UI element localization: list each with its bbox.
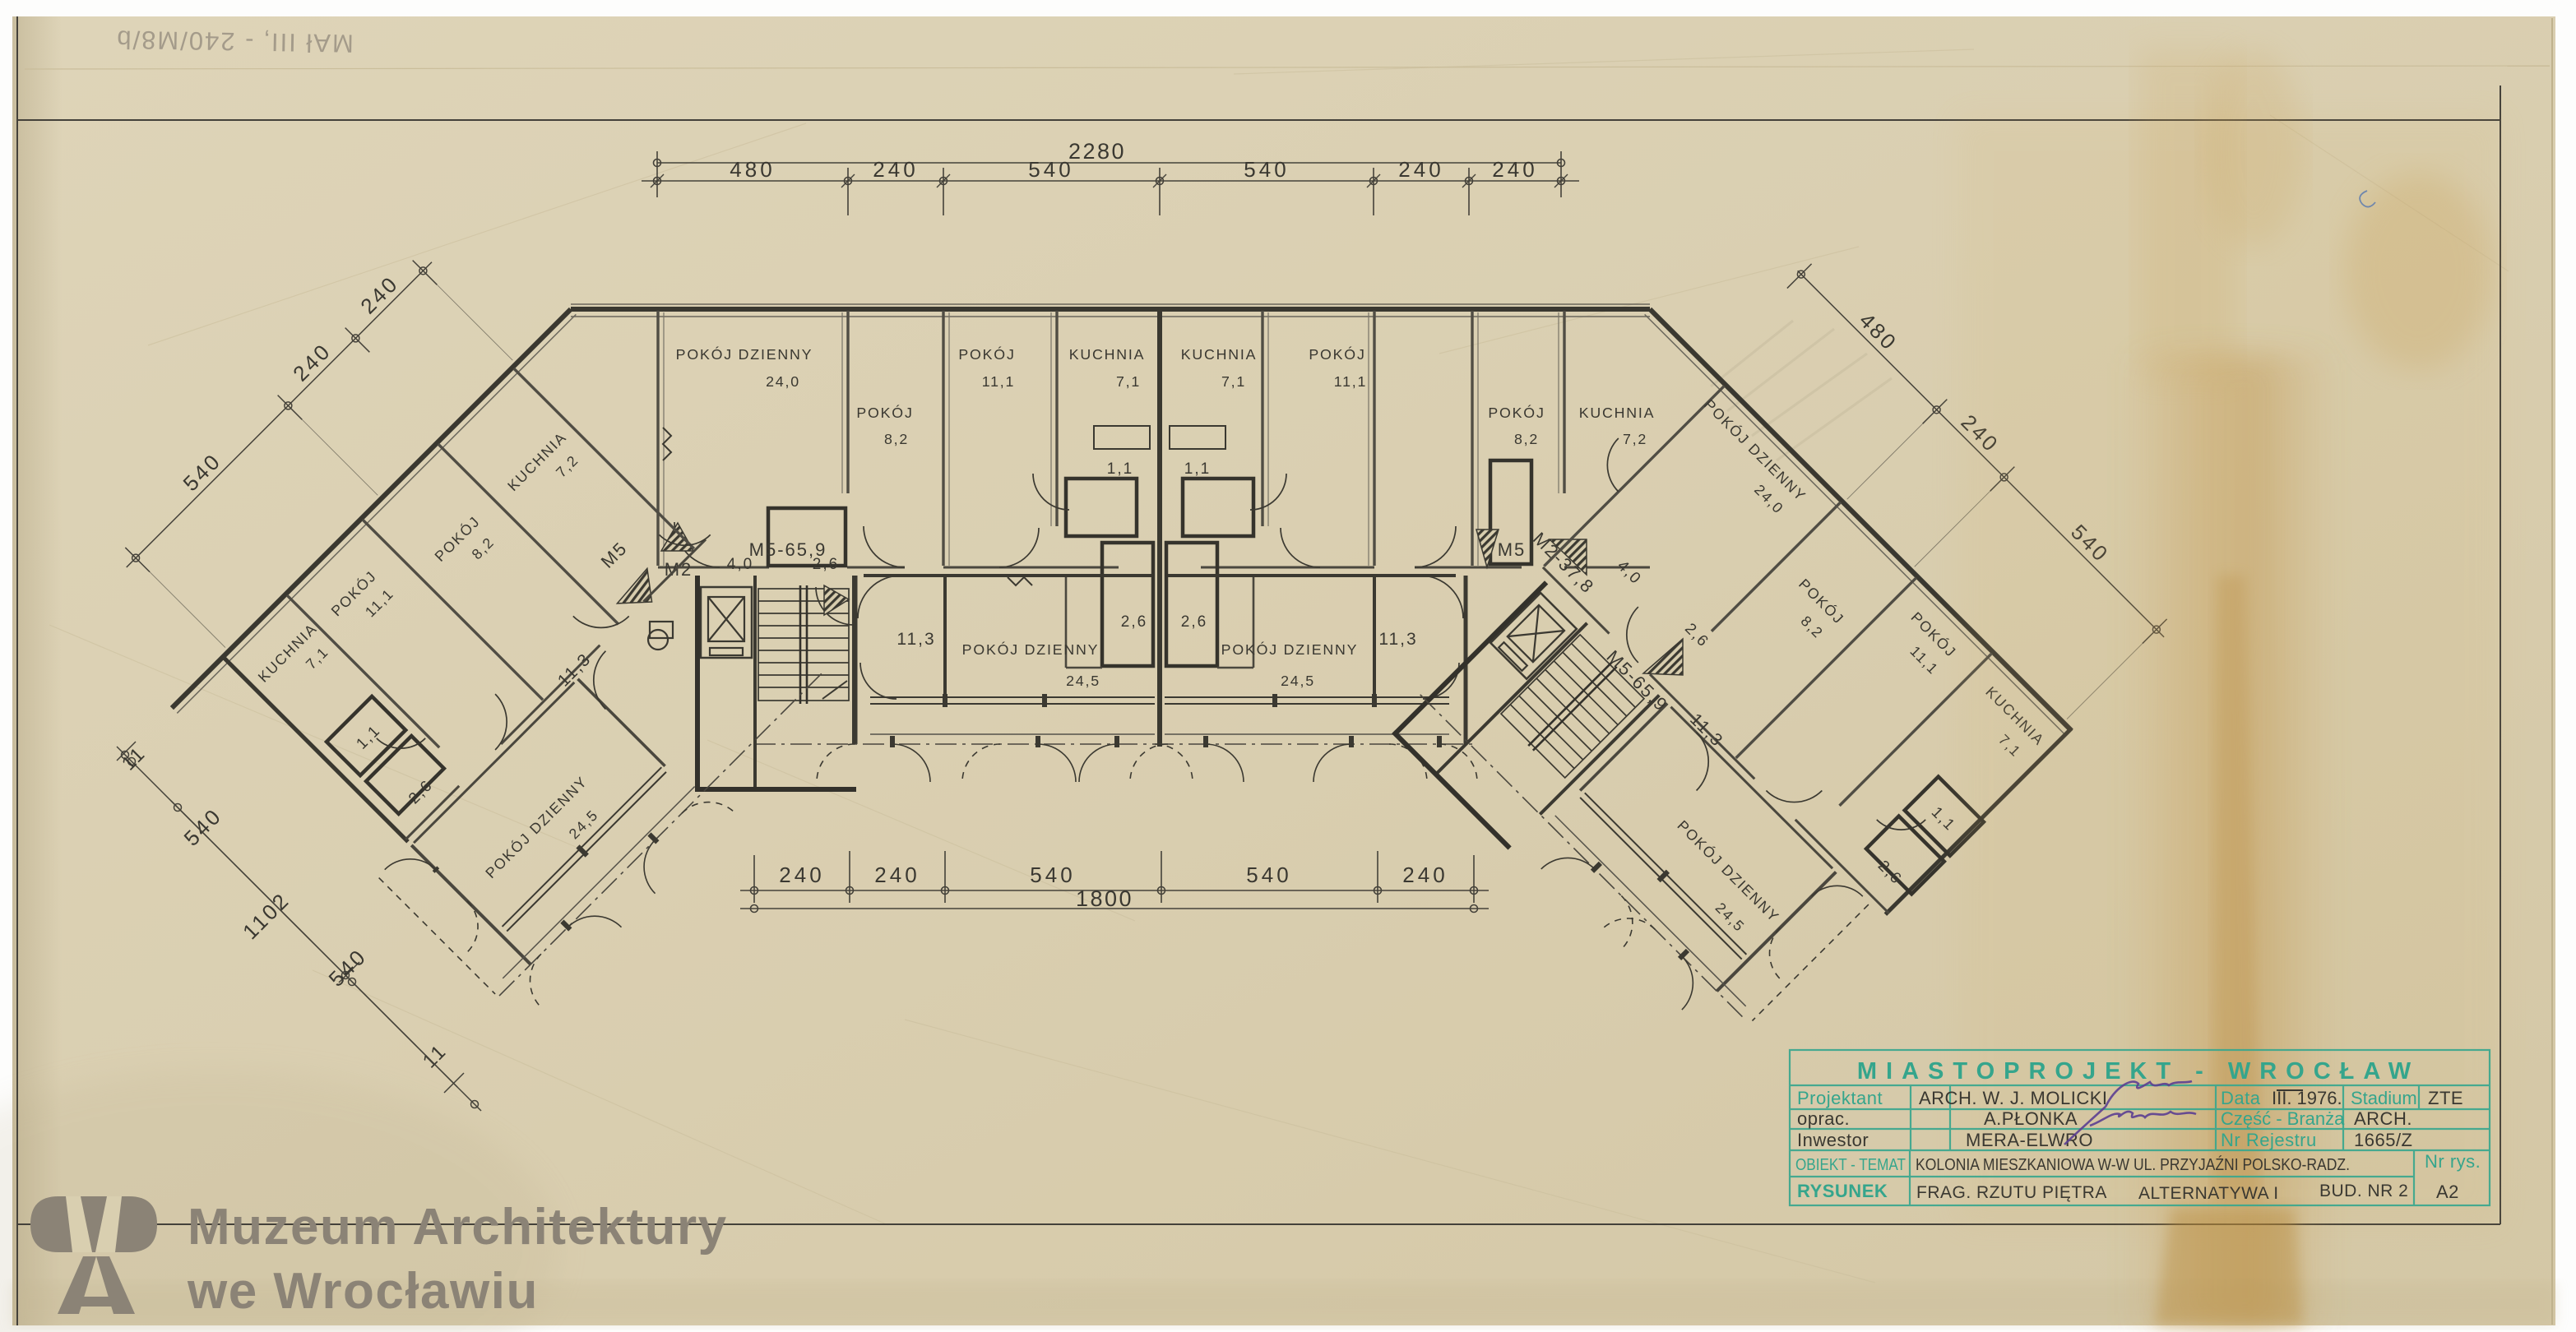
svg-text:7,1: 7,1 (1116, 373, 1141, 390)
svg-text:ZTE: ZTE (2428, 1088, 2463, 1108)
svg-text:1665/Z: 1665/Z (2354, 1130, 2413, 1150)
svg-text:POKÓJ: POKÓJ (958, 345, 1015, 363)
svg-text:MAł III‚ - 240/M8/b: MAł III‚ - 240/M8/b (115, 25, 354, 58)
svg-text:ARCH. W. J. MOLICKI: ARCH. W. J. MOLICKI (1919, 1088, 2108, 1108)
svg-text:oprac.: oprac. (1797, 1108, 1850, 1129)
svg-text:240: 240 (779, 863, 824, 887)
svg-text:2280: 2280 (1068, 139, 1126, 164)
svg-text:1,1: 1,1 (1184, 460, 1211, 478)
svg-text:RYSUNEK: RYSUNEK (1797, 1181, 1888, 1201)
svg-text:11,1: 11,1 (982, 373, 1016, 390)
svg-text:11,3: 11,3 (897, 630, 935, 649)
svg-text:24,5: 24,5 (1066, 673, 1100, 689)
svg-text:OBIEKT - TEMAT: OBIEKT - TEMAT (1795, 1155, 1906, 1174)
svg-text:POKÓJ DZIENNY: POKÓJ DZIENNY (1221, 641, 1359, 658)
svg-text:24,0: 24,0 (766, 373, 800, 390)
svg-text:Stadium: Stadium (2351, 1088, 2417, 1108)
svg-text:KUCHNIA: KUCHNIA (1579, 405, 1656, 421)
svg-text:540: 540 (1030, 863, 1075, 887)
svg-text:240: 240 (1398, 157, 1443, 182)
svg-text:KUCHNIA: KUCHNIA (1181, 346, 1258, 363)
svg-text:480: 480 (730, 157, 775, 182)
svg-text:8,2: 8,2 (1514, 431, 1539, 447)
svg-text:we Wrocławiu: we Wrocławiu (187, 1263, 539, 1320)
svg-text:MERA-ELWRO: MERA-ELWRO (1966, 1130, 2093, 1150)
svg-text:2,6: 2,6 (1181, 613, 1207, 631)
svg-text:POKÓJ: POKÓJ (1309, 345, 1365, 363)
svg-text:Data: Data (2221, 1088, 2261, 1108)
svg-text:Nr Rejestru: Nr Rejestru (2221, 1130, 2317, 1150)
svg-text:540: 540 (1028, 157, 1073, 182)
svg-text:A.PŁONKA: A.PŁONKA (1984, 1108, 2078, 1129)
svg-text:BUD. NR 2: BUD. NR 2 (2319, 1182, 2408, 1200)
svg-text:1,1: 1,1 (1107, 460, 1133, 478)
svg-text:240: 240 (873, 157, 918, 182)
svg-text:240: 240 (874, 863, 920, 887)
svg-text:Muzeum Architektury: Muzeum Architektury (188, 1199, 728, 1256)
svg-text:2,6: 2,6 (1121, 613, 1147, 631)
svg-text:540: 540 (1244, 157, 1289, 182)
svg-text:540: 540 (1246, 863, 1291, 887)
svg-text:M5: M5 (1498, 539, 1527, 560)
svg-text:MIASTOPROJEKT - WROCŁAW: MIASTOPROJEKT - WROCŁAW (1857, 1058, 2420, 1085)
svg-text:KOLONIA MIESZKANIOWA W-W UL.: KOLONIA MIESZKANIOWA W-W UL. PRZYJAŹNI P… (1916, 1155, 2350, 1174)
svg-text:ARCH.: ARCH. (2354, 1108, 2412, 1129)
svg-text:KUCHNIA: KUCHNIA (1069, 346, 1146, 363)
svg-text:M5-65,9: M5-65,9 (749, 539, 827, 560)
svg-text:POKÓJ DZIENNY: POKÓJ DZIENNY (676, 345, 813, 363)
svg-text:Część - Branża: Część - Branża (2221, 1108, 2345, 1129)
svg-text:ALTERNATYWA I: ALTERNATYWA I (2138, 1184, 2279, 1203)
svg-text:A2: A2 (2436, 1182, 2459, 1202)
svg-text:Projektant: Projektant (1797, 1088, 1883, 1108)
svg-text:FRAG. RZUTU PIĘTRA: FRAG. RZUTU PIĘTRA (1916, 1183, 2107, 1202)
svg-text:Inwestor: Inwestor (1797, 1130, 1869, 1150)
svg-text:8,2: 8,2 (884, 431, 909, 447)
svg-text:1800: 1800 (1076, 886, 1133, 911)
svg-text:24,5: 24,5 (1281, 673, 1315, 689)
svg-text:7,2: 7,2 (1623, 431, 1647, 447)
svg-text:POKÓJ: POKÓJ (1488, 404, 1545, 421)
svg-text:POKÓJ DZIENNY: POKÓJ DZIENNY (962, 641, 1100, 658)
svg-text:7,1: 7,1 (1221, 373, 1246, 390)
svg-text:240: 240 (1492, 157, 1537, 182)
svg-text:11,3: 11,3 (1378, 630, 1417, 649)
svg-text:11,1: 11,1 (1334, 373, 1368, 390)
svg-text:POKÓJ: POKÓJ (856, 404, 913, 421)
svg-text:Nr rys.: Nr rys. (2425, 1151, 2481, 1172)
svg-text:240: 240 (1402, 863, 1448, 887)
